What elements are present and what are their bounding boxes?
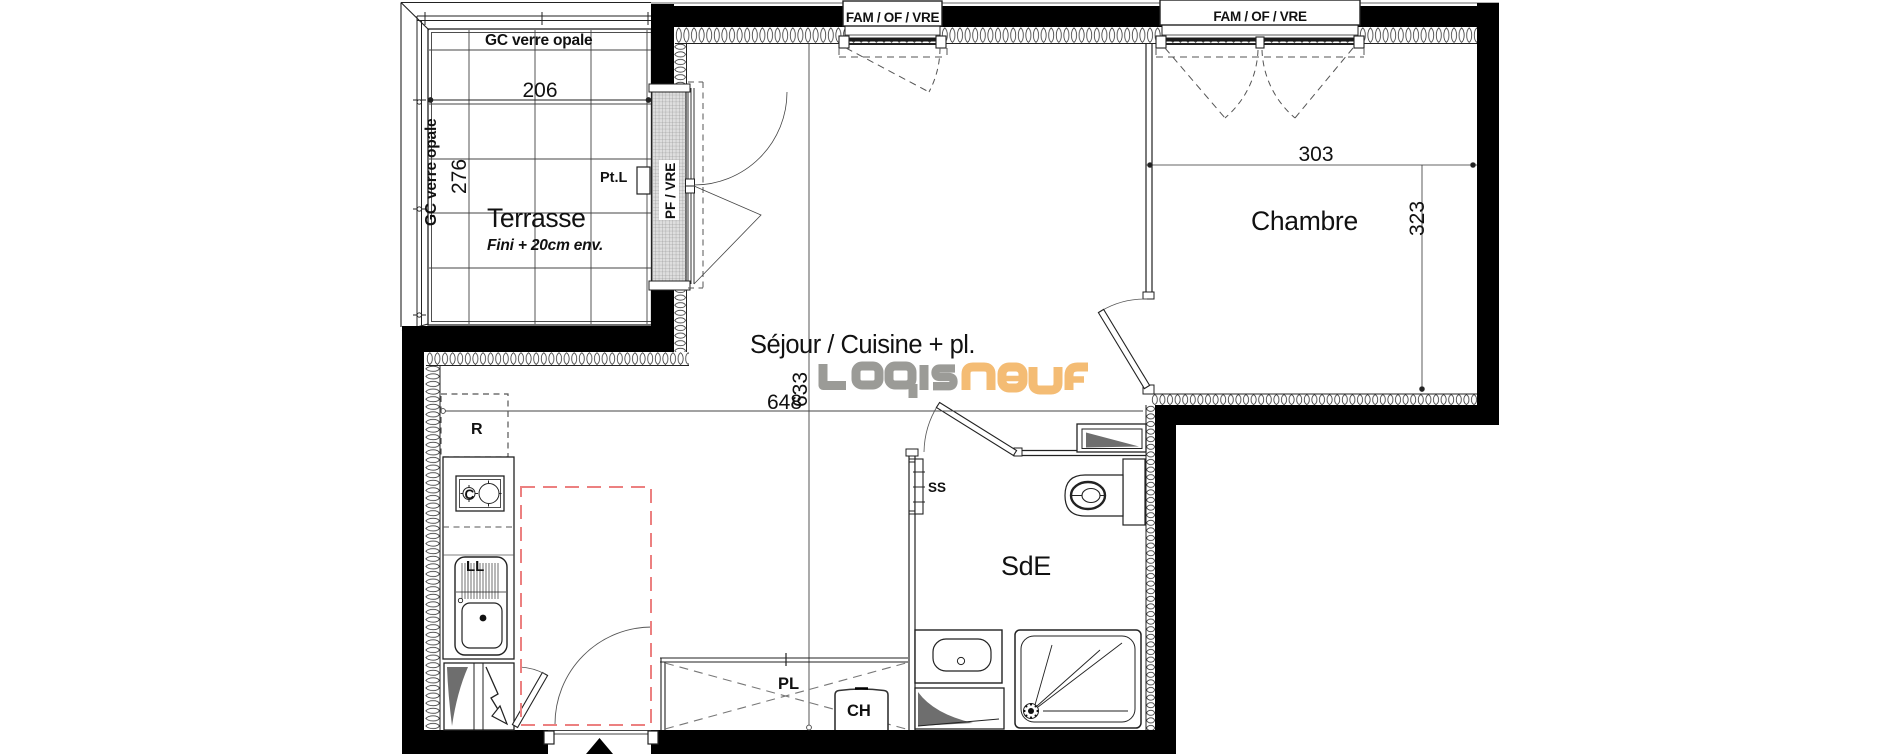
svg-text:Pt.L: Pt.L: [600, 170, 628, 186]
svg-text:GC verre opale: GC verre opale: [485, 32, 593, 49]
svg-text:303: 303: [1298, 143, 1333, 166]
svg-text:Terrasse: Terrasse: [487, 203, 585, 233]
svg-text:LL: LL: [466, 558, 484, 575]
svg-text:CH: CH: [847, 702, 871, 720]
svg-text:PF / VRE: PF / VRE: [663, 163, 678, 219]
svg-text:FAM / OF / VRE: FAM / OF / VRE: [1213, 9, 1307, 24]
svg-text:GC verre opale: GC verre opale: [423, 118, 440, 226]
svg-text:FAM / OF / VRE: FAM / OF / VRE: [846, 10, 940, 25]
svg-text:Fini + 20cm env.: Fini + 20cm env.: [487, 237, 603, 254]
svg-text:SS: SS: [928, 480, 946, 495]
svg-text:PL: PL: [778, 675, 799, 693]
svg-text:C: C: [465, 487, 475, 502]
svg-text:323: 323: [1406, 201, 1429, 236]
svg-text:206: 206: [522, 79, 557, 102]
svg-text:Séjour / Cuisine + pl.: Séjour / Cuisine + pl.: [750, 331, 975, 359]
svg-text:R: R: [471, 421, 483, 438]
svg-text:Chambre: Chambre: [1251, 206, 1358, 236]
svg-text:633: 633: [789, 372, 812, 407]
svg-text:SdE: SdE: [1001, 551, 1051, 581]
svg-text:276: 276: [448, 159, 471, 194]
